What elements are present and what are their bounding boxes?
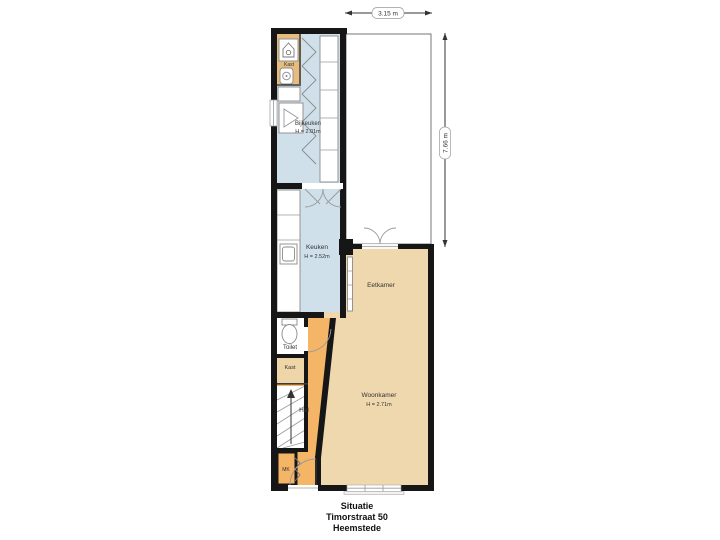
room-kast-hal xyxy=(277,358,305,384)
woonkamer-label: Woonkamer xyxy=(362,392,398,399)
keuken-label: Keuken xyxy=(306,244,328,251)
mk-label: MK xyxy=(282,467,290,473)
woonkamer-height: H = 2.71m xyxy=(366,402,392,408)
bijkeuken-label: Bijkeuken xyxy=(295,121,321,127)
eetkamer-label: Eetkamer xyxy=(367,282,396,289)
keuken-height: H = 2.52m xyxy=(304,254,330,260)
terrace-french-doors xyxy=(362,228,398,249)
keuken-door-opening xyxy=(302,183,343,189)
width-dimension-label: 3.15 m xyxy=(378,11,398,18)
cabinet xyxy=(278,87,300,101)
woonkamer-window xyxy=(344,485,404,495)
radiator xyxy=(348,257,353,311)
dimension-width: 3.15 m xyxy=(345,8,432,19)
keuken-passage xyxy=(324,312,340,318)
toilet-label: Toilet xyxy=(283,345,297,351)
terrace-floor xyxy=(346,34,431,244)
floorplan-drawing: 3.15 m 7.66 m Kast Bijkeuken H = 2.01m K… xyxy=(0,0,720,540)
height-dimension-label: 7.66 m xyxy=(443,133,450,153)
water-heater-icon xyxy=(280,68,293,84)
wall-mid-vertical xyxy=(340,28,346,318)
toilet-door-opening xyxy=(304,327,308,351)
kast-top-label: Kast xyxy=(284,62,295,68)
kitchen-counter xyxy=(277,190,300,312)
hal-label: Hal xyxy=(299,407,309,414)
cabinet-column xyxy=(320,36,338,182)
wall-left xyxy=(271,28,277,491)
caption: Situatie Timorstraat 50 Heemstede xyxy=(326,501,388,533)
floorplan-page: 3.15 m 7.66 m Kast Bijkeuken H = 2.01m K… xyxy=(0,0,720,540)
bijkeuken-window xyxy=(270,100,277,126)
caption-line-1: Situatie xyxy=(341,501,374,511)
wall-top xyxy=(271,28,347,34)
cv-boiler-icon xyxy=(279,39,298,61)
toilet-icon xyxy=(282,319,297,344)
caption-line-3: Heemstede xyxy=(333,523,381,533)
wall-right xyxy=(428,244,434,491)
dimension-height: 7.66 m xyxy=(440,33,451,247)
kast-hal-label: Kast xyxy=(284,365,295,371)
bijkeuken-height: H = 2.01m xyxy=(295,129,321,135)
caption-line-2: Timorstraat 50 xyxy=(326,512,388,522)
wall-kast-bottom xyxy=(277,383,308,385)
wall-toilet-bottom xyxy=(277,354,308,358)
